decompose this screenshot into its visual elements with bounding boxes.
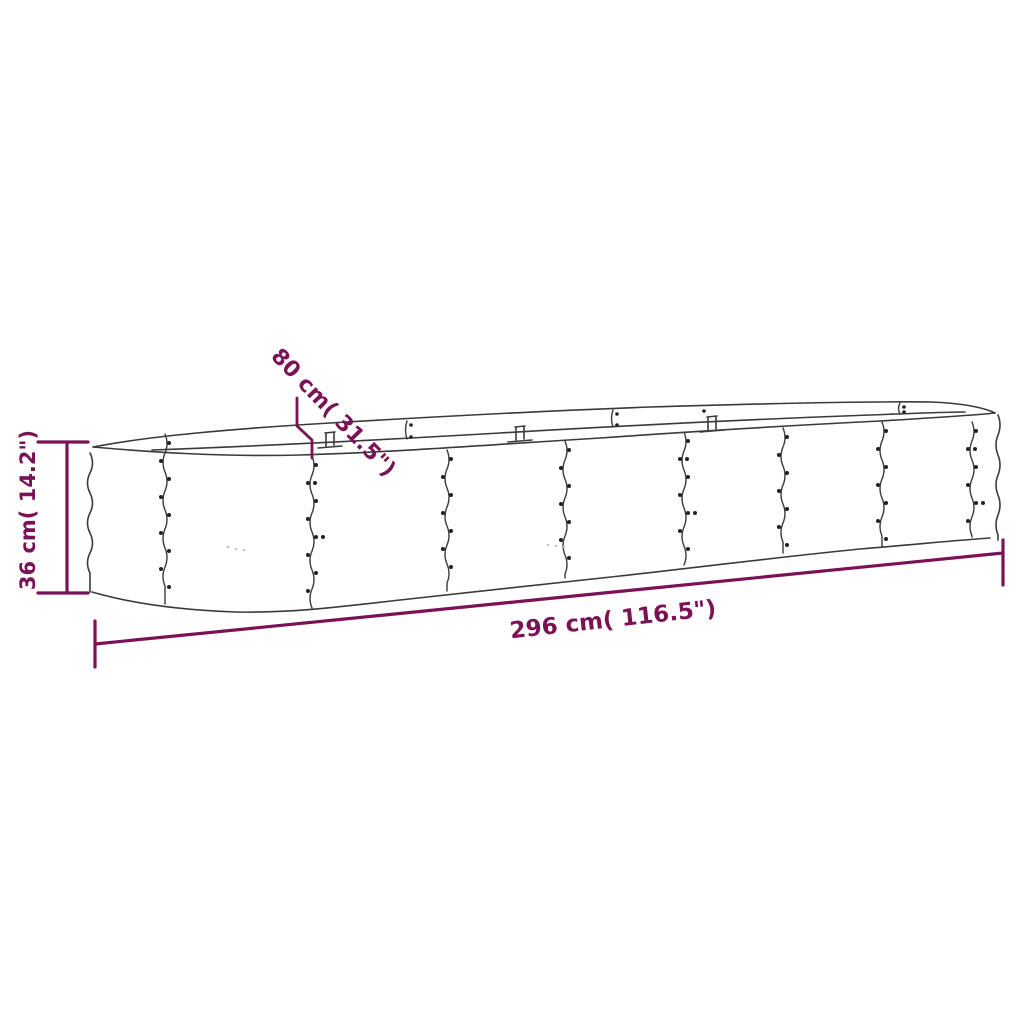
planter-outline	[88, 402, 1001, 612]
length-dimension-line	[95, 540, 1003, 667]
bottom-front-edge	[92, 538, 990, 612]
rim-back-top-edge	[93, 402, 995, 447]
corrugation-seams-and-rivets	[88, 403, 1001, 609]
height-dimension-line	[38, 442, 88, 593]
rim-inner-far-edge	[152, 412, 965, 450]
height-dimension-label: 36 cm( 14.2")	[16, 430, 40, 590]
planter-line-drawing	[0, 0, 1024, 1024]
product-dimension-diagram: 36 cm( 14.2") 296 cm( 116.5") 80 cm( 31.…	[0, 0, 1024, 1024]
rim-front-top-edge	[93, 413, 995, 455]
